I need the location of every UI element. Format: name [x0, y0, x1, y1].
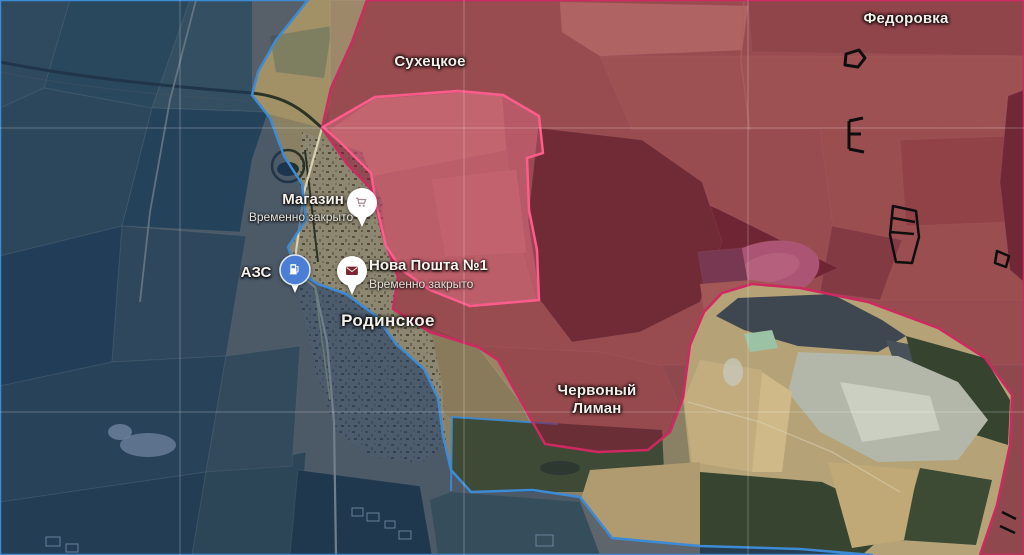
poi-status-nova-poshta: Временно закрыто: [369, 277, 589, 291]
poi-label-nova-poshta[interactable]: Нова Пошта №1: [369, 257, 589, 274]
map-canvas[interactable]: Сухецкое Федоровка Родинское Червоный Ли…: [0, 0, 1024, 555]
poi-pin-nova-poshta[interactable]: [335, 254, 369, 300]
poi-status-magazin: Временно закрыто: [231, 210, 371, 224]
poi-label-magazin[interactable]: Магазин: [258, 191, 368, 208]
poi-label-azs[interactable]: АЗС: [218, 264, 294, 281]
envelope-icon: [346, 267, 358, 275]
